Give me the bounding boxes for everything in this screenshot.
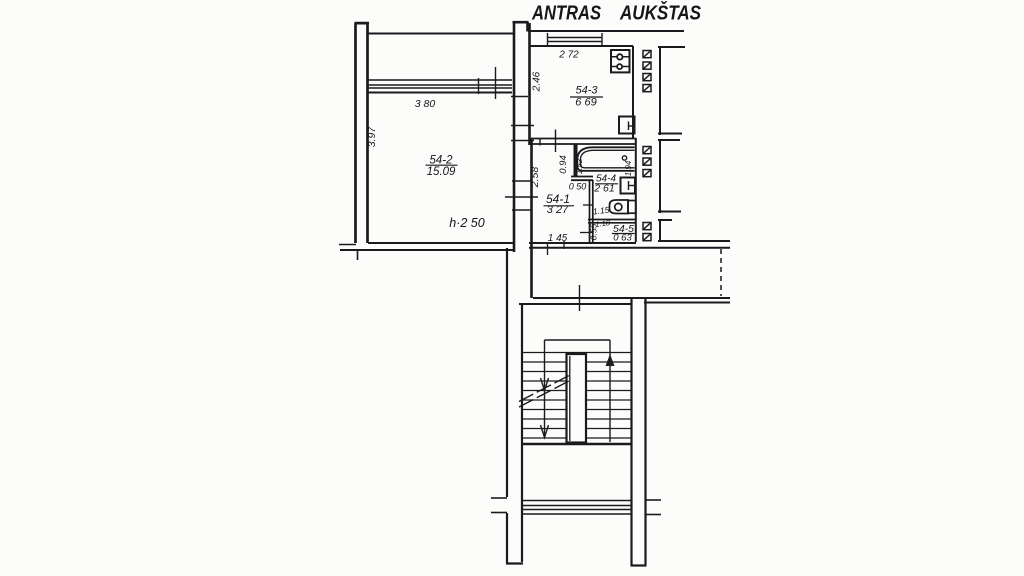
- svg-text:h·2 50: h·2 50: [449, 216, 484, 230]
- svg-text:2 72: 2 72: [558, 50, 579, 61]
- svg-text:2.58: 2.58: [529, 167, 541, 189]
- svg-text:1.15: 1.15: [592, 205, 610, 217]
- svg-text:1 45: 1 45: [548, 233, 568, 244]
- svg-text:AUKŠTAS: AUKŠTAS: [619, 1, 701, 25]
- svg-text:6 69: 6 69: [575, 97, 596, 109]
- svg-text:3.97: 3.97: [366, 126, 378, 148]
- svg-text:2.46: 2.46: [532, 71, 543, 92]
- svg-text:0.55: 0.55: [589, 223, 599, 240]
- svg-text:0.94: 0.94: [558, 155, 569, 174]
- svg-text:1.94: 1.94: [624, 160, 633, 176]
- svg-text:3 80: 3 80: [415, 98, 436, 110]
- svg-text:0 63: 0 63: [613, 233, 632, 244]
- svg-text:15.09: 15.09: [427, 166, 456, 178]
- svg-text:54-3: 54-3: [575, 85, 598, 97]
- svg-text:1.52: 1.52: [575, 158, 584, 174]
- svg-text:ANTRAS: ANTRAS: [531, 3, 601, 25]
- svg-text:0 50: 0 50: [569, 182, 587, 192]
